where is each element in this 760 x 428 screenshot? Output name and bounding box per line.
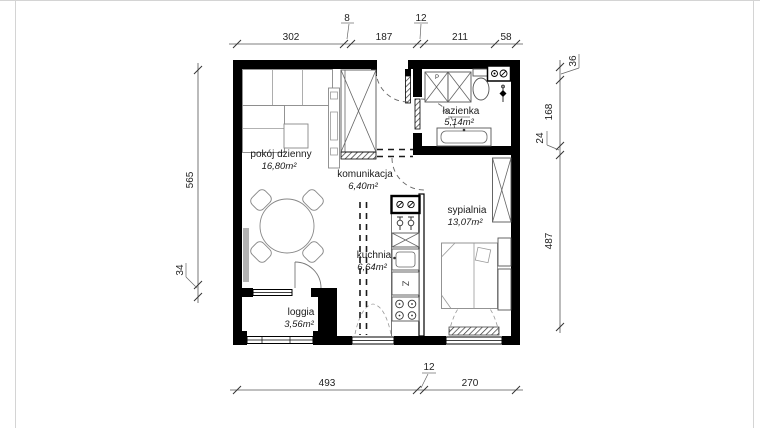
dishwasher (392, 233, 419, 247)
dresser (498, 269, 511, 310)
loggia-bottom-window (247, 337, 313, 344)
room-area-loggia: 3,56m² (284, 319, 314, 330)
bedroom-door (392, 158, 424, 190)
dim-right-36: 36 (568, 55, 579, 67)
bedroom-window (446, 337, 502, 344)
dim-right-487: 487 (544, 232, 555, 249)
washer-label: P (435, 75, 439, 81)
kitchen-window-swing (355, 304, 373, 334)
kitchen-window-swing (373, 304, 391, 334)
dim-top-58: 58 (500, 32, 512, 43)
dim-bottom-493: 493 (319, 378, 336, 389)
side-table (284, 124, 308, 148)
room-label-living: pokój dzienny (250, 149, 311, 160)
valve-symbol (500, 85, 507, 102)
balcony-door (295, 262, 321, 288)
bedroom-radiator (449, 327, 499, 335)
room-area-hall: 6,40m² (348, 181, 378, 192)
dim-top-8: 8 (344, 13, 350, 24)
dim-top-187: 187 (376, 32, 393, 43)
fridge-label: Z (401, 281, 411, 287)
floor-plan-canvas: 302 8 187 12 211 58 565 34 36 168 24 (0, 0, 760, 428)
dimension-chain-top: 302 8 187 12 211 58 (229, 13, 523, 48)
page-frame (0, 0, 760, 428)
dim-top-211: 211 (452, 32, 468, 43)
dim-top-302: 302 (283, 32, 300, 43)
fridge: Z (392, 272, 419, 295)
bedroom-wardrobe (493, 158, 512, 222)
living-room-radiator (243, 228, 249, 282)
bathtub (437, 128, 491, 146)
dim-bottom-270: 270 (462, 378, 479, 389)
living-room-furniture (243, 70, 340, 283)
entrance-door (376, 69, 411, 103)
cooker-hood-box (392, 196, 420, 213)
dimension-chain-right: 36 168 24 487 (535, 54, 579, 333)
dryer (448, 72, 471, 102)
dining-table-set (249, 188, 326, 265)
nightstand (498, 238, 511, 266)
stove (392, 297, 419, 321)
dimension-chain-bottom: 493 12 270 (230, 362, 523, 394)
room-label-bathroom: łazienka (443, 106, 480, 117)
kitchen-sink (392, 249, 419, 270)
dim-right-168: 168 (544, 103, 555, 120)
dim-top-12: 12 (415, 13, 427, 24)
dim-bottom-12: 12 (423, 362, 435, 373)
tv-cabinet (329, 88, 340, 168)
utility-meter-box (488, 66, 511, 81)
bedroom-furniture (442, 158, 512, 335)
wardrobe-sliding-track (341, 152, 376, 159)
room-label-kitchen: kuchnia (357, 250, 392, 261)
dim-left-565: 565 (185, 171, 196, 188)
hall-wardrobe (341, 70, 376, 159)
room-area-bathroom: 5,14m² (444, 117, 474, 128)
room-label-hall: komunikacja (337, 169, 393, 180)
room-area-kitchen: 6,64m² (357, 262, 387, 273)
dimension-chain-left: 565 34 (175, 63, 202, 303)
room-label-bedroom: sypialnia (448, 205, 487, 216)
kitchen-fixtures: Z (392, 196, 420, 336)
room-label-loggia: loggia (288, 307, 315, 318)
room-area-living: 16,80m² (262, 161, 298, 172)
gas-water-valves (397, 217, 414, 230)
dim-left-34: 34 (175, 264, 186, 276)
living-loggia-window (253, 290, 292, 296)
bed (442, 243, 498, 309)
dim-right-24: 24 (535, 132, 546, 144)
room-area-bedroom: 13,07m² (448, 217, 484, 228)
kitchen-bedroom-partition (419, 194, 424, 336)
kitchen-window (352, 337, 394, 344)
